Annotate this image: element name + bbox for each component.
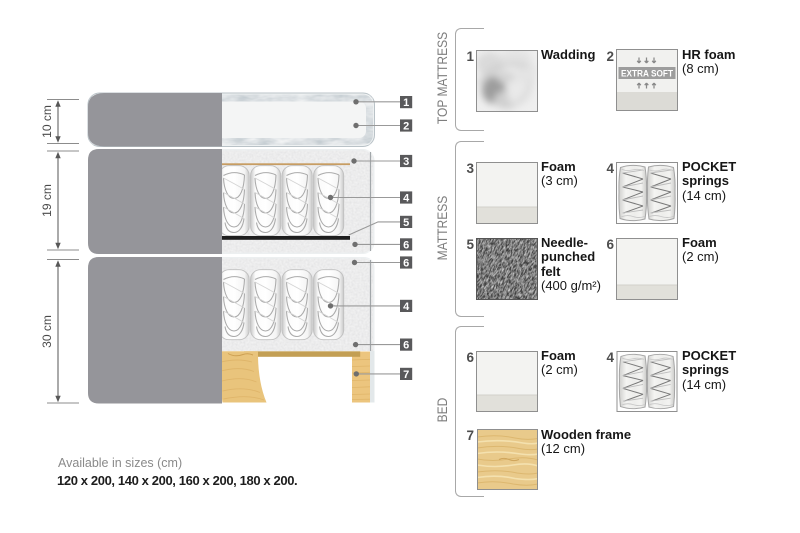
svg-text:10 cm: 10 cm <box>40 105 54 138</box>
svg-text:30 cm: 30 cm <box>40 315 54 348</box>
svg-text:3: 3 <box>403 156 409 168</box>
svg-text:1: 1 <box>403 97 409 109</box>
svg-text:6: 6 <box>403 258 409 270</box>
svg-text:EXTRA SOFT: EXTRA SOFT <box>621 69 673 80</box>
svg-text:4: 4 <box>403 301 410 313</box>
svg-text:5: 5 <box>403 217 409 229</box>
svg-text:4: 4 <box>403 193 410 205</box>
svg-text:6: 6 <box>403 240 409 252</box>
svg-text:2: 2 <box>403 121 409 133</box>
svg-text:19 cm: 19 cm <box>40 184 54 217</box>
svg-text:6: 6 <box>403 340 409 352</box>
svg-text:7: 7 <box>403 369 409 381</box>
